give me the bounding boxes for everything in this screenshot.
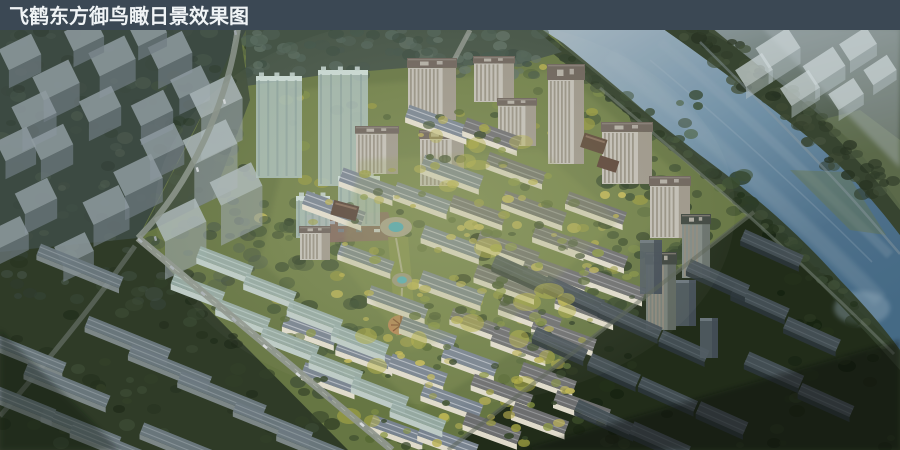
svg-text:飞鹤东方御鸟瞰日景效果图: 飞鹤东方御鸟瞰日景效果图 xyxy=(9,4,249,28)
